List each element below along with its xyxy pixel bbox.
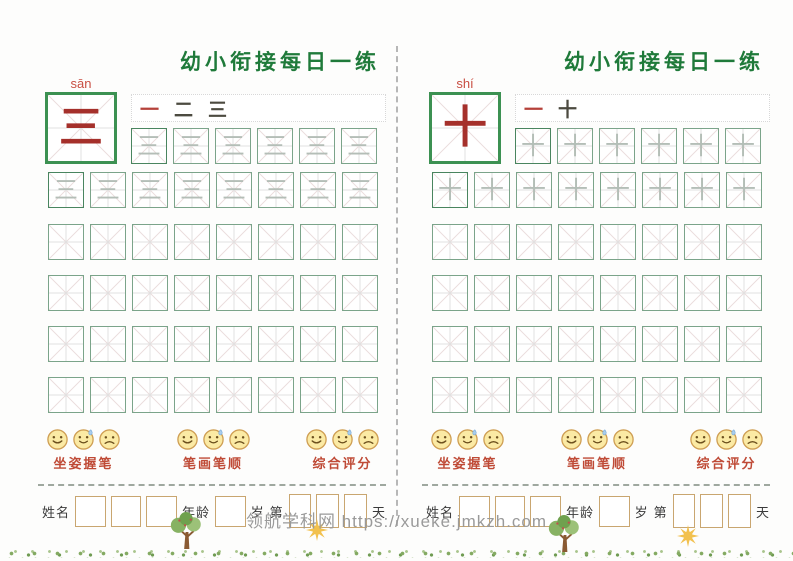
rating-label: 坐姿握笔 (46, 453, 121, 472)
rating-group-overall: 综合评分 (689, 428, 764, 472)
practice-box (684, 377, 720, 413)
practice-box (726, 326, 762, 362)
sad-face-icon (228, 428, 251, 451)
practice-box (642, 275, 678, 311)
trace-box: 十 (683, 128, 719, 164)
practice-box (300, 377, 336, 413)
practice-box (600, 377, 636, 413)
practice-box (726, 275, 762, 311)
rating-faces (305, 428, 380, 451)
practice-box (684, 275, 720, 311)
page-title: 幼小衔接每日一练 (38, 50, 386, 76)
practice-grid (432, 224, 770, 413)
stroke-order-block: 一二三 三三三三三三 (131, 76, 386, 164)
main-character-block: sān 三 (38, 76, 118, 164)
character-header: sān 三 一二三 三三三三三三 (38, 76, 386, 164)
trace-box: 三 (342, 172, 378, 208)
trace-character: 三 (348, 178, 372, 202)
pinyin-label: sān (45, 76, 117, 92)
trace-box: 十 (474, 172, 510, 208)
practice-box (258, 326, 294, 362)
practice-box (516, 275, 552, 311)
trace-box: 十 (599, 128, 635, 164)
sweat-face-icon (715, 428, 738, 451)
trace-box: 十 (516, 172, 552, 208)
trace-box: 十 (684, 172, 720, 208)
practice-row (48, 326, 386, 362)
practice-row (48, 224, 386, 260)
trace-character: 三 (137, 134, 161, 158)
rating-group-strokes: 笔画笔顺 (176, 428, 251, 472)
practice-box (174, 275, 210, 311)
worksheet-page-left: 幼小衔接每日一练 sān 三 一二三 三三三三三三 三三三三三三三三 坐姿握笔 (38, 50, 386, 532)
practice-box (132, 377, 168, 413)
sweat-face-icon (456, 428, 479, 451)
trace-box: 十 (725, 128, 761, 164)
practice-box (216, 377, 252, 413)
practice-box (516, 326, 552, 362)
trace-character: 十 (690, 178, 714, 202)
trace-box: 三 (132, 172, 168, 208)
age-box (599, 496, 630, 527)
practice-box (300, 275, 336, 311)
practice-box (600, 326, 636, 362)
stroke-order-block: 一十 十十十十十十 (515, 76, 770, 164)
trace-character: 十 (648, 178, 672, 202)
stroke-order-char: 十 (558, 95, 577, 122)
trace-character: 三 (263, 134, 287, 158)
practice-box (558, 326, 594, 362)
trace-box: 三 (257, 128, 293, 164)
name-box (111, 496, 142, 527)
practice-box (174, 377, 210, 413)
practice-grid (48, 224, 386, 413)
sad-face-icon (741, 428, 764, 451)
rating-section: 坐姿握笔 笔画笔顺 综合评分 (46, 428, 380, 472)
trace-character: 十 (731, 134, 755, 158)
trace-character: 十 (647, 134, 671, 158)
trace-character: 十 (564, 178, 588, 202)
trace-character: 三 (264, 178, 288, 202)
sweat-face-icon (586, 428, 609, 451)
rating-label: 笔画笔顺 (176, 453, 251, 472)
rating-faces (46, 428, 121, 451)
day-box (700, 494, 723, 528)
trace-box: 三 (215, 128, 251, 164)
practice-box (90, 326, 126, 362)
practice-box (48, 224, 84, 260)
trace-row-1: 十十十十十十 (515, 128, 770, 164)
practice-box (432, 224, 468, 260)
happy-face-icon (430, 428, 453, 451)
practice-box (558, 275, 594, 311)
trace-character: 十 (438, 178, 462, 202)
trace-character: 三 (347, 134, 371, 158)
dashed-divider (38, 484, 386, 486)
rating-faces (560, 428, 635, 451)
practice-box (600, 275, 636, 311)
practice-box (48, 275, 84, 311)
trace-box: 三 (174, 172, 210, 208)
practice-row (48, 275, 386, 311)
trace-character: 十 (606, 178, 630, 202)
rating-section: 坐姿握笔 笔画笔顺 综合评分 (430, 428, 764, 472)
practice-box (300, 326, 336, 362)
trace-row-2: 三三三三三三三三 (48, 172, 378, 208)
tree-icon (546, 513, 584, 555)
practice-box (342, 275, 378, 311)
rating-group-overall: 综合评分 (305, 428, 380, 472)
worksheet-page-right: 幼小衔接每日一练 shí 十 一十 十十十十十十 十十十十十十十十 坐姿握笔 (422, 50, 770, 532)
trace-box: 三 (341, 128, 377, 164)
practice-box (642, 326, 678, 362)
sad-face-icon (98, 428, 121, 451)
practice-row (432, 275, 770, 311)
trace-row-2: 十十十十十十十十 (432, 172, 762, 208)
happy-face-icon (46, 428, 69, 451)
trace-box: 十 (558, 172, 594, 208)
trace-row-1: 三三三三三三 (131, 128, 386, 164)
page-separator (396, 46, 398, 526)
day-unit-label: 天 (756, 502, 770, 521)
practice-box (516, 377, 552, 413)
rating-label: 综合评分 (305, 453, 380, 472)
happy-face-icon (176, 428, 199, 451)
day-prefix-label: 第 (654, 502, 668, 521)
stroke-order-char: 三 (208, 95, 227, 122)
stroke-order: 一十 (515, 94, 770, 122)
practice-box (132, 224, 168, 260)
trace-character: 十 (522, 178, 546, 202)
main-character: 三 (59, 106, 103, 150)
practice-box (48, 326, 84, 362)
sad-face-icon (357, 428, 380, 451)
practice-box (432, 326, 468, 362)
practice-box (90, 224, 126, 260)
trace-character: 三 (305, 134, 329, 158)
stroke-order-char: 一 (524, 95, 543, 122)
page-title: 幼小衔接每日一练 (422, 50, 770, 76)
practice-box (174, 224, 210, 260)
rating-group-posture: 坐姿握笔 (430, 428, 505, 472)
practice-box (342, 326, 378, 362)
practice-box (342, 377, 378, 413)
stroke-order: 一二三 (131, 94, 386, 122)
age-unit-label: 岁 (635, 502, 649, 521)
practice-box (642, 224, 678, 260)
trace-character: 三 (54, 178, 78, 202)
main-character-box: 三 (45, 92, 117, 164)
practice-box (48, 377, 84, 413)
trace-character: 三 (221, 134, 245, 158)
trace-character: 三 (306, 178, 330, 202)
stroke-order-char: 二 (174, 95, 193, 122)
practice-box (258, 224, 294, 260)
age-box (215, 496, 246, 527)
rating-faces (176, 428, 251, 451)
rating-group-posture: 坐姿握笔 (46, 428, 121, 472)
trace-box: 三 (216, 172, 252, 208)
stroke-order-char: 一 (140, 95, 159, 122)
trace-box: 十 (557, 128, 593, 164)
rating-label: 坐姿握笔 (430, 453, 505, 472)
trace-character: 三 (96, 178, 120, 202)
practice-box (474, 377, 510, 413)
grass-border (0, 544, 793, 558)
trace-character: 十 (605, 134, 629, 158)
sun-icon (676, 524, 700, 548)
practice-row (432, 224, 770, 260)
happy-face-icon (689, 428, 712, 451)
trace-box: 十 (600, 172, 636, 208)
practice-box (432, 377, 468, 413)
practice-box (216, 326, 252, 362)
tree-icon (168, 510, 206, 552)
practice-box (516, 224, 552, 260)
rating-label: 笔画笔顺 (560, 453, 635, 472)
main-character-box: 十 (429, 92, 501, 164)
practice-box (132, 275, 168, 311)
practice-row (432, 326, 770, 362)
day-box (728, 494, 751, 528)
rating-faces (430, 428, 505, 451)
rating-faces (689, 428, 764, 451)
practice-box (342, 224, 378, 260)
practice-box (90, 275, 126, 311)
watermark: 领航学科网 https://xueke.jmkzh.com (246, 507, 547, 532)
trace-box: 三 (48, 172, 84, 208)
trace-character: 三 (179, 134, 203, 158)
practice-box (258, 377, 294, 413)
trace-character: 十 (689, 134, 713, 158)
practice-box (174, 326, 210, 362)
practice-box (726, 224, 762, 260)
dashed-divider (422, 484, 770, 486)
trace-character: 十 (732, 178, 756, 202)
trace-box: 十 (641, 128, 677, 164)
practice-box (132, 326, 168, 362)
trace-box: 三 (299, 128, 335, 164)
practice-box (258, 275, 294, 311)
practice-box (90, 377, 126, 413)
trace-box: 十 (642, 172, 678, 208)
pinyin-label: shí (429, 76, 501, 92)
sweat-face-icon (202, 428, 225, 451)
rating-label: 综合评分 (689, 453, 764, 472)
practice-box (300, 224, 336, 260)
name-label: 姓名 (42, 502, 70, 521)
day-box (673, 494, 696, 528)
trace-box: 十 (432, 172, 468, 208)
practice-box (684, 326, 720, 362)
trace-character: 三 (180, 178, 204, 202)
practice-box (642, 377, 678, 413)
happy-face-icon (305, 428, 328, 451)
trace-character: 三 (138, 178, 162, 202)
trace-box: 三 (300, 172, 336, 208)
practice-box (726, 377, 762, 413)
practice-box (474, 326, 510, 362)
trace-box: 三 (131, 128, 167, 164)
practice-box (684, 224, 720, 260)
sweat-face-icon (72, 428, 95, 451)
trace-character: 十 (563, 134, 587, 158)
practice-box (432, 275, 468, 311)
trace-box: 十 (726, 172, 762, 208)
name-box (75, 496, 106, 527)
happy-face-icon (560, 428, 583, 451)
practice-box (216, 224, 252, 260)
sad-face-icon (482, 428, 505, 451)
practice-box (474, 275, 510, 311)
rating-group-strokes: 笔画笔顺 (560, 428, 635, 472)
practice-row (48, 377, 386, 413)
trace-box: 三 (90, 172, 126, 208)
practice-box (558, 377, 594, 413)
practice-row (432, 377, 770, 413)
character-header: shí 十 一十 十十十十十十 (422, 76, 770, 164)
trace-character: 十 (521, 134, 545, 158)
practice-box (600, 224, 636, 260)
trace-box: 十 (515, 128, 551, 164)
trace-box: 三 (173, 128, 209, 164)
practice-box (558, 224, 594, 260)
practice-box (216, 275, 252, 311)
sweat-face-icon (331, 428, 354, 451)
main-character: 十 (443, 106, 487, 150)
trace-character: 三 (222, 178, 246, 202)
main-character-block: shí 十 (422, 76, 502, 164)
trace-box: 三 (258, 172, 294, 208)
trace-character: 十 (480, 178, 504, 202)
sad-face-icon (612, 428, 635, 451)
practice-box (474, 224, 510, 260)
